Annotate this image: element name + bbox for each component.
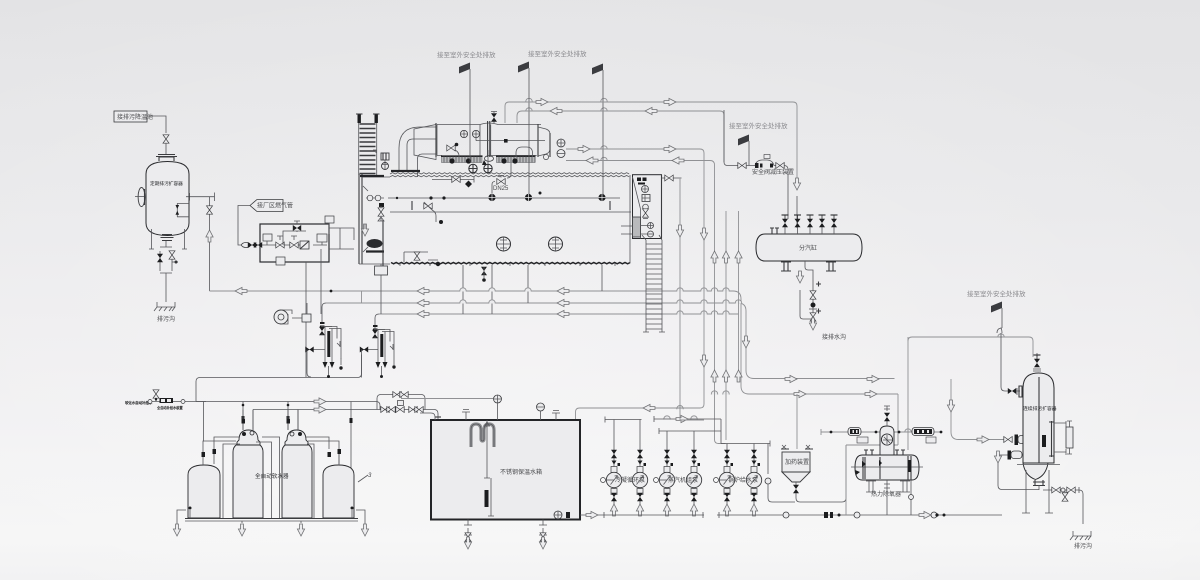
svg-text:接至室外安全处排放: 接至室外安全处排放 — [437, 50, 496, 59]
svg-text:接至室外安全处排放: 接至室外安全处排放 — [528, 49, 587, 58]
svg-text:分汽缸: 分汽缸 — [799, 244, 817, 252]
svg-text:不锈钢保温水箱: 不锈钢保温水箱 — [500, 468, 542, 476]
svg-text:排污沟: 排污沟 — [1074, 542, 1092, 550]
svg-text:热力除氧器: 热力除氧器 — [871, 490, 901, 498]
svg-text:加药装置: 加药装置 — [785, 458, 809, 466]
svg-text:定期排污扩容器: 定期排污扩容器 — [150, 180, 183, 187]
svg-text:接厂区燃气管: 接厂区燃气管 — [257, 202, 293, 210]
svg-text:全自动补给水装置: 全自动补给水装置 — [156, 405, 183, 410]
svg-text:蒸汽机组泵: 蒸汽机组泵 — [668, 476, 698, 484]
svg-text:连续排污扩容器: 连续排污扩容器 — [1023, 405, 1057, 412]
svg-text:冷凝循环泵: 冷凝循环泵 — [615, 476, 645, 484]
svg-text:排污沟: 排污沟 — [157, 315, 175, 323]
svg-text:全自动软水器: 全自动软水器 — [255, 472, 289, 480]
svg-text:接至室外安全处排放: 接至室外安全处排放 — [729, 121, 788, 130]
svg-text:锅炉给水泵: 锅炉给水泵 — [728, 476, 758, 484]
svg-text:安全阀减压装置: 安全阀减压装置 — [752, 168, 794, 176]
svg-text:接排污降温池: 接排污降温池 — [117, 113, 153, 121]
svg-text:接至室外安全处排放: 接至室外安全处排放 — [967, 289, 1026, 298]
svg-text:接排水沟: 接排水沟 — [822, 333, 846, 341]
svg-text:DN25: DN25 — [493, 186, 509, 192]
